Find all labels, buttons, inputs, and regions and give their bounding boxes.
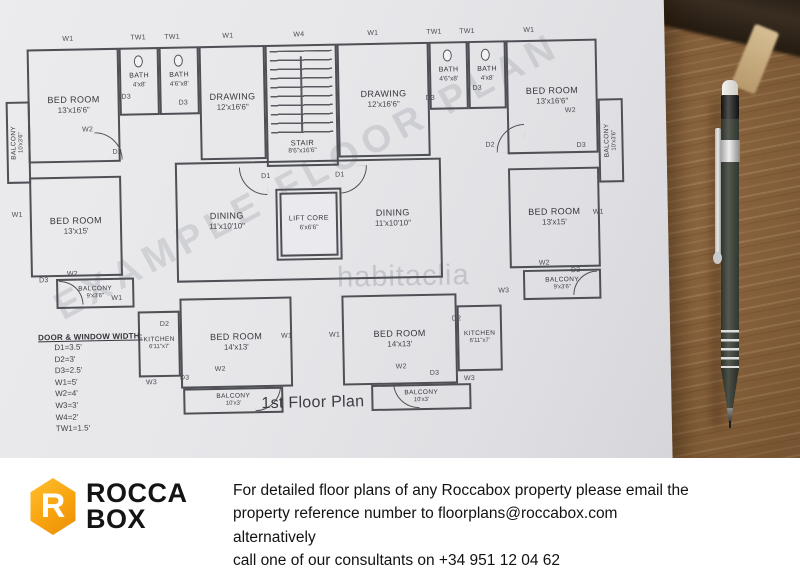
stair-label-group: STAIR 8'6"x16'6" [270, 138, 334, 157]
marker-label: D3 [430, 370, 439, 377]
contact-message: For detailed floor plans of any Roccabox… [233, 479, 703, 572]
marker-label: D2 [160, 321, 169, 328]
marker-label: W2 [215, 366, 226, 373]
plan-title: 1st Floor Plan [261, 393, 364, 413]
floor-plan-paper: EXAMPLE FLOOR PLAN habitaclia BED ROOM 1… [0, 0, 673, 458]
room-label: BED ROOM [373, 328, 425, 340]
room-drawing-right: DRAWING 12'x16'6" [337, 42, 431, 158]
pencil-lead [729, 421, 731, 428]
marker-label: D1 [261, 173, 270, 180]
marker-label: W2 [396, 363, 407, 370]
room-dining-left: DINING 11'x10'10" [182, 201, 273, 243]
marker-label: W2 [539, 260, 550, 267]
room-label: BED ROOM [47, 94, 99, 106]
roccabox-logo: R ROCCA BOX [28, 478, 188, 535]
pencil-ferrule [721, 95, 739, 119]
door-window-width-legend: DOOR & WINDOW WIDTH: D1=3.5' D2=3' D3=2.… [38, 331, 160, 435]
room-dims: 6'11"x7' [470, 338, 490, 346]
marker-label: W1 [222, 33, 233, 40]
room-label: BED ROOM [50, 215, 102, 227]
desk-photo: EXAMPLE FLOOR PLAN habitaclia BED ROOM 1… [0, 0, 800, 458]
room-dims: 13'x15' [542, 218, 567, 229]
pencil-clip-ball [713, 252, 722, 264]
contact-message-line1: For detailed floor plans of any Roccabox… [233, 479, 703, 502]
room-dims: 9'x3'6" [553, 284, 571, 292]
marker-label: W2 [82, 126, 93, 133]
toilet-fixture-icon [443, 49, 452, 61]
roccabox-monogram: R [41, 489, 66, 523]
room-label: LIFT CORE [289, 215, 329, 225]
marker-label: W1 [62, 36, 73, 43]
room-bedroom-bottom-right: BED ROOM 14'x13' [341, 293, 458, 385]
brand-wordmark: ROCCA BOX [86, 481, 188, 531]
roccabox-hexagon-icon: R [28, 478, 78, 535]
marker-label: D1 [335, 171, 344, 178]
legend-item: TW1=1.5' [56, 421, 160, 435]
room-dims: 14'x13' [387, 340, 412, 351]
marker-label: D3 [426, 95, 435, 102]
room-bedroom-bottom-left: BED ROOM 14'x13' [179, 297, 293, 389]
room-dims: 10'x3' [226, 401, 241, 409]
marker-label: TW1 [164, 34, 180, 41]
room-dims: 4'x8' [481, 75, 494, 84]
marker-label: W2 [67, 271, 78, 278]
room-dims: 6'x6'6" [300, 224, 319, 233]
room-label: BED ROOM [526, 85, 578, 97]
room-dims: 12'x16'6" [368, 100, 400, 111]
marker-label: W3 [498, 287, 509, 294]
room-label: BATH [439, 67, 459, 76]
marker-label: D2 [452, 315, 461, 322]
floor-plan-drawing: EXAMPLE FLOOR PLAN habitaclia BED ROOM 1… [0, 0, 649, 458]
marker-label: D3 [180, 374, 189, 381]
room-dims: 12'x16'6" [217, 103, 249, 114]
marker-label: W1 [329, 332, 340, 339]
room-label-group: BALCONY 10'x3'6" [10, 126, 27, 160]
marker-label: D3 [39, 277, 48, 284]
marker-label: D2 [485, 142, 494, 149]
mechanical-pencil [706, 80, 756, 440]
room-dims: 13'x15' [64, 227, 89, 238]
marker-label: W1 [593, 209, 604, 216]
marker-label: TW1 [459, 28, 475, 35]
room-balcony-bottom-right: BALCONY 10'x3' [371, 383, 471, 411]
room-balcony-top-right: BALCONY 10'x3'6" [598, 98, 625, 182]
marker-label: W4 [293, 31, 304, 38]
brand-line2: BOX [86, 507, 188, 532]
room-label: BATH [129, 73, 149, 82]
marker-label: D3 [571, 267, 580, 274]
room-dims: 14'x13' [224, 343, 249, 354]
pencil-grip-rings [721, 330, 739, 368]
room-dims: 10'x3'6" [611, 130, 619, 151]
room-dining-right: DINING 11'x10'10" [348, 198, 439, 240]
toilet-fixture-icon [134, 55, 143, 67]
room-label: BALCONY [603, 123, 612, 157]
brand-line1: ROCCA [86, 481, 188, 506]
toilet-fixture-icon [174, 55, 183, 67]
contact-message-line3: call one of our consultants on +34 951 1… [233, 549, 703, 572]
room-label: BED ROOM [210, 331, 262, 343]
marker-label: D3 [472, 85, 481, 92]
marker-label: W1 [367, 30, 378, 37]
room-dims: 13'x16'6" [58, 106, 90, 117]
room-lift-core: LIFT CORE 6'x6'6" [279, 192, 338, 257]
pencil-clip [715, 128, 721, 258]
marker-label: W1 [523, 27, 534, 34]
room-kitchen-right: KITCHEN 6'11"x7' [457, 304, 503, 371]
room-label: DINING [376, 207, 410, 219]
marker-label: W2 [565, 107, 576, 114]
room-dims: 4'6"x8' [170, 81, 189, 90]
room-label: DINING [210, 211, 244, 223]
room-balcony-top-left: BALCONY 10'x3'6" [6, 102, 32, 184]
room-dims: 10'x3'6" [18, 132, 26, 153]
marker-label: D3 [121, 94, 130, 101]
room-label: BED ROOM [528, 206, 580, 218]
room-drawing-left: DRAWING 12'x16'6" [199, 45, 267, 160]
contact-banner: R ROCCA BOX For detailed floor plans of … [0, 458, 800, 566]
marker-label: W1 [281, 333, 292, 340]
room-dims: 4'x8' [133, 81, 146, 90]
room-label: BATH [169, 72, 189, 81]
marker-label: D3 [576, 142, 585, 149]
room-label: BATH [477, 66, 497, 75]
room-dims: 9'x3'6" [87, 293, 105, 301]
room-label-group: BALCONY 10'x3'6" [603, 123, 620, 157]
marker-label: W1 [12, 212, 23, 219]
room-bedroom-mid-left: BED ROOM 13'x15' [29, 176, 123, 278]
room-label: DRAWING [209, 91, 255, 103]
room-bedroom-mid-right: BED ROOM 13'x15' [508, 167, 601, 269]
room-dims: 13'x16'6" [536, 97, 568, 108]
contact-message-line2: property reference number to floorplans@… [233, 502, 703, 549]
marker-label: TW1 [426, 29, 442, 36]
room-dims: 11'x10'10" [209, 222, 245, 233]
room-dims: 4'6"x8' [439, 75, 458, 84]
marker-label: W1 [111, 295, 122, 302]
room-dims: 11'x10'10" [375, 219, 411, 230]
room-dims: 8'6"x16'6" [271, 147, 335, 157]
marker-label: W3 [464, 375, 475, 382]
marker-label: D2 [113, 149, 122, 156]
pencil-band [720, 140, 740, 162]
room-label: DRAWING [360, 88, 406, 100]
marker-label: TW1 [130, 34, 146, 41]
marker-label: D3 [179, 99, 188, 106]
door-arc [496, 124, 525, 153]
pencil-tip [727, 408, 733, 422]
toilet-fixture-icon [481, 49, 490, 61]
